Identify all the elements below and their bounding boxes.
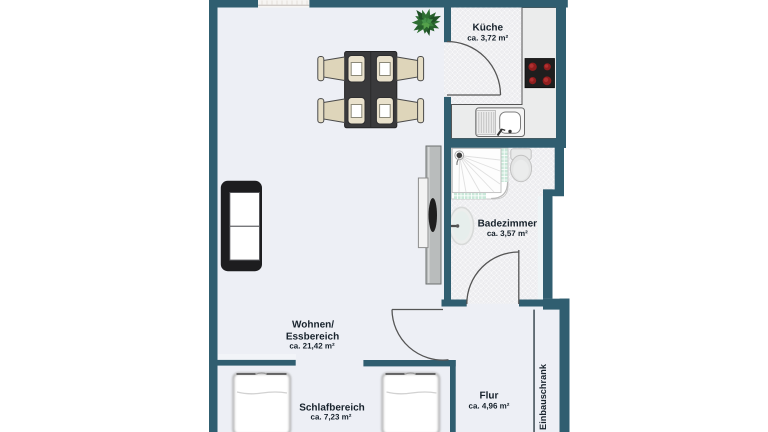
svg-text:Badezimmer: Badezimmer bbox=[478, 218, 538, 229]
svg-text:ca. 21,42 m²: ca. 21,42 m² bbox=[289, 341, 335, 350]
svg-text:Flur: Flur bbox=[480, 391, 499, 402]
svg-text:Wohnen/: Wohnen/ bbox=[292, 320, 334, 331]
svg-text:ca. 4,96 m²: ca. 4,96 m² bbox=[469, 402, 510, 411]
svg-text:Einbauschrank: Einbauschrank bbox=[538, 363, 548, 430]
svg-text:ca. 7,23 m²: ca. 7,23 m² bbox=[311, 413, 352, 422]
svg-text:ca. 3,72 m²: ca. 3,72 m² bbox=[467, 33, 508, 42]
svg-text:ca. 3,57 m²: ca. 3,57 m² bbox=[487, 229, 528, 238]
svg-text:Küche: Küche bbox=[473, 22, 504, 33]
